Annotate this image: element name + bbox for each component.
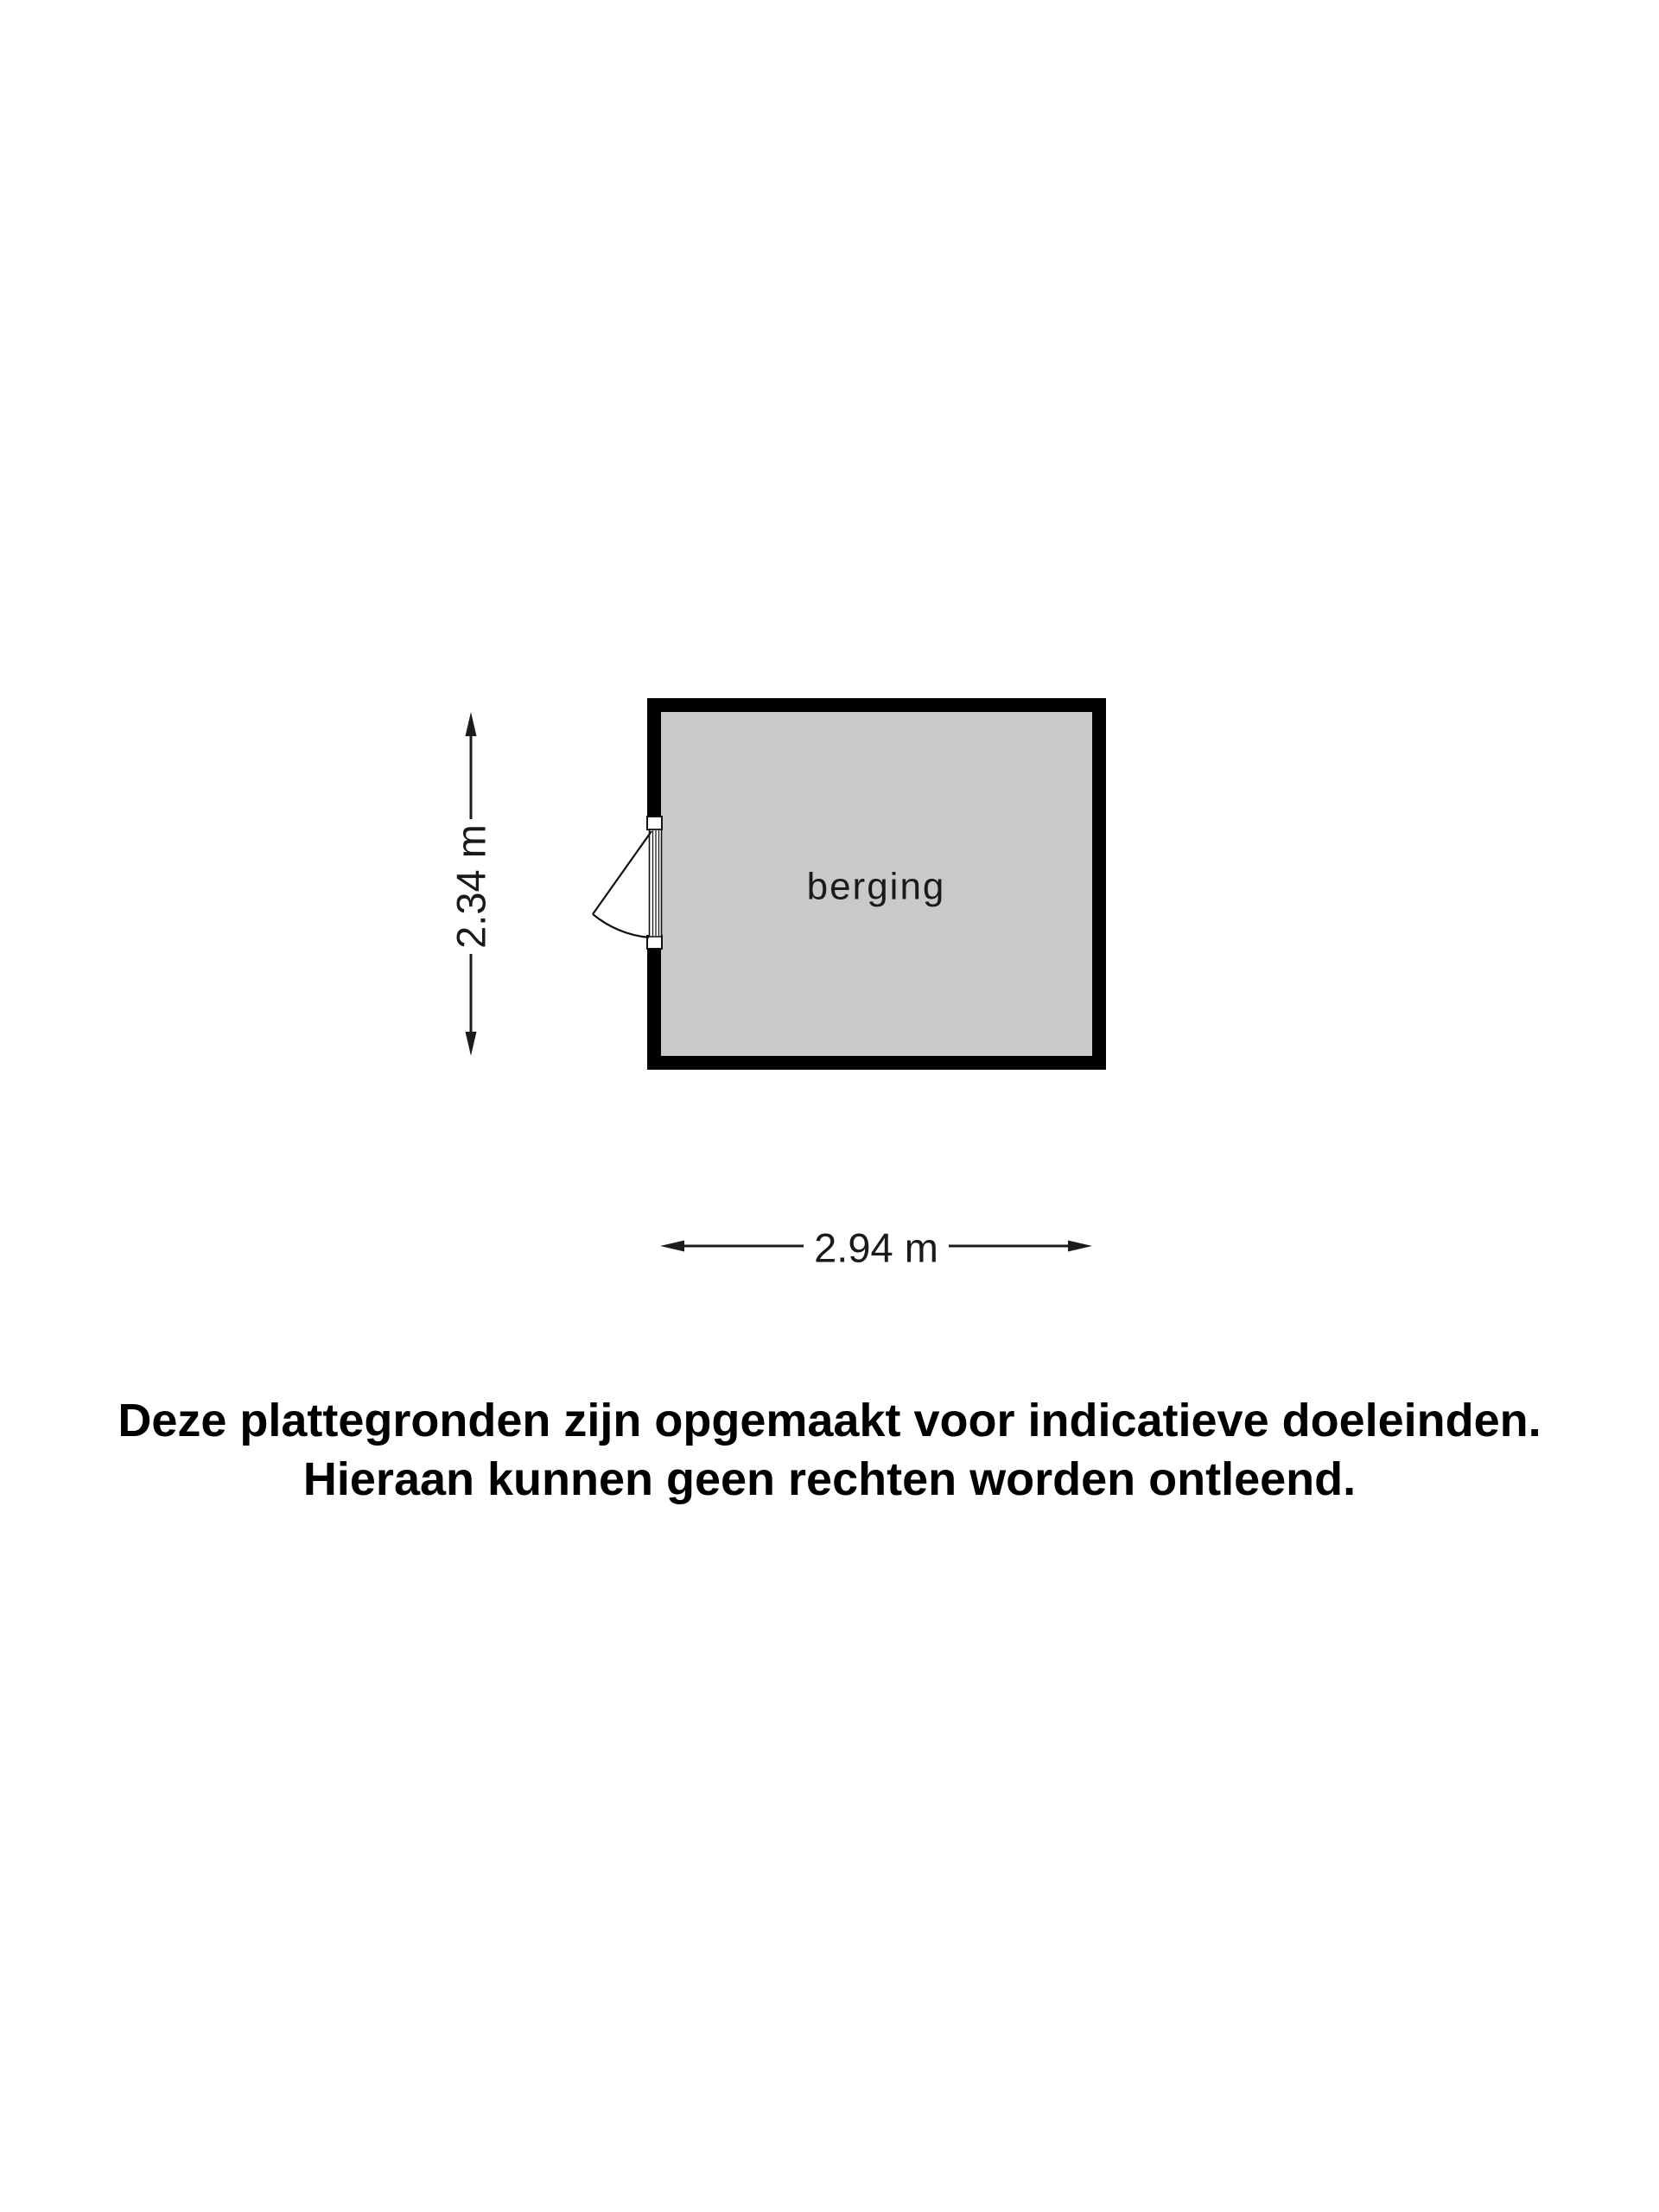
disclaimer-text: Deze plattegronden zijn opgemaakt voor i… [0, 1391, 1659, 1509]
door-swing-arc [593, 914, 649, 938]
door-frame-bottom [647, 936, 662, 949]
height-dimension-label: 2.34 m [448, 824, 494, 949]
arrow-right-icon [1068, 1241, 1092, 1252]
width-dimension-label: 2.94 m [814, 1225, 938, 1271]
room-label: berging [807, 866, 946, 908]
height-dimension-arrow: 2.34 m [448, 712, 494, 1056]
door-frame-top [647, 817, 662, 829]
arrow-down-icon [466, 1032, 477, 1056]
width-dimension-arrow: 2.94 m [660, 1225, 1092, 1271]
arrow-left-icon [660, 1241, 684, 1252]
disclaimer-line-1: Deze plattegronden zijn opgemaakt voor i… [0, 1391, 1659, 1450]
floorplan-page: 2.34 m 2.94 m berging Deze plattegronden… [0, 0, 1659, 2212]
disclaimer-line-2: Hieraan kunnen geen rechten worden ontle… [0, 1450, 1659, 1509]
floorplan-drawing: 2.34 m 2.94 m berging [0, 0, 1659, 2212]
arrow-up-icon [466, 712, 477, 736]
door-swing-leaf-line [593, 831, 652, 914]
